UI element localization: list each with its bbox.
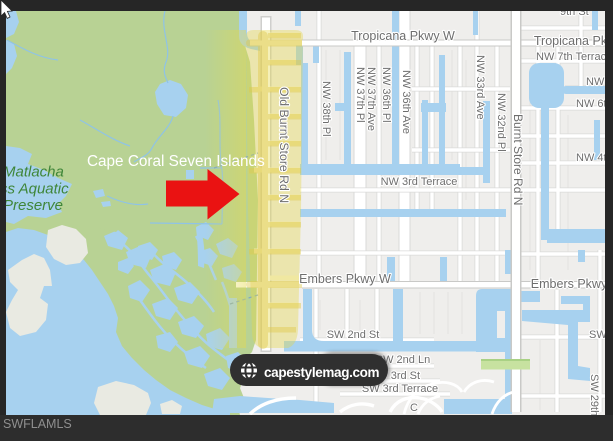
svg-text:SW 2nd St: SW 2nd St: [327, 329, 380, 341]
svg-text:NW 36th Ave: NW 36th Ave: [400, 70, 412, 134]
svg-text:Embers Pkwy: Embers Pkwy: [531, 277, 608, 291]
svg-text:SW 29th: SW 29th: [588, 374, 600, 416]
svg-text:NW 32nd Pl: NW 32nd Pl: [495, 93, 507, 152]
svg-text:NW 38th Pl: NW 38th Pl: [320, 81, 332, 137]
svg-text:Burnt Store Rd N: Burnt Store Rd N: [511, 114, 525, 205]
svg-text:Cape Coral Seven Islands: Cape Coral Seven Islands: [87, 153, 265, 170]
svg-text:Old Burnt Store Rd N: Old Burnt Store Rd N: [277, 87, 291, 203]
svg-text:NW 37th Pl: NW 37th Pl: [354, 67, 366, 123]
svg-text:NW 7th Terrace: NW 7th Terrace: [536, 51, 612, 63]
svg-text:NW 33rd Ave: NW 33rd Ave: [474, 55, 486, 120]
svg-text:NW 37th Ave: NW 37th Ave: [365, 67, 377, 131]
svg-text:NW 3rd Terrace: NW 3rd Terrace: [381, 176, 458, 188]
svg-text:Tropicana Pkwy W: Tropicana Pkwy W: [351, 29, 455, 43]
svg-text:ss Aquatic: ss Aquatic: [0, 181, 69, 198]
svg-text:NW 36th Pl: NW 36th Pl: [380, 67, 392, 123]
svg-text:C: C: [410, 402, 418, 414]
svg-text:capestylemag.com: capestylemag.com: [264, 365, 380, 380]
svg-text:Preserve: Preserve: [3, 197, 63, 214]
svg-text:Tropicana Pkw: Tropicana Pkw: [534, 34, 613, 48]
svg-text:SWFLAMLS: SWFLAMLS: [3, 417, 72, 431]
svg-text:Embers Pkwy W: Embers Pkwy W: [299, 272, 391, 286]
svg-text:Matlacha: Matlacha: [3, 164, 64, 181]
